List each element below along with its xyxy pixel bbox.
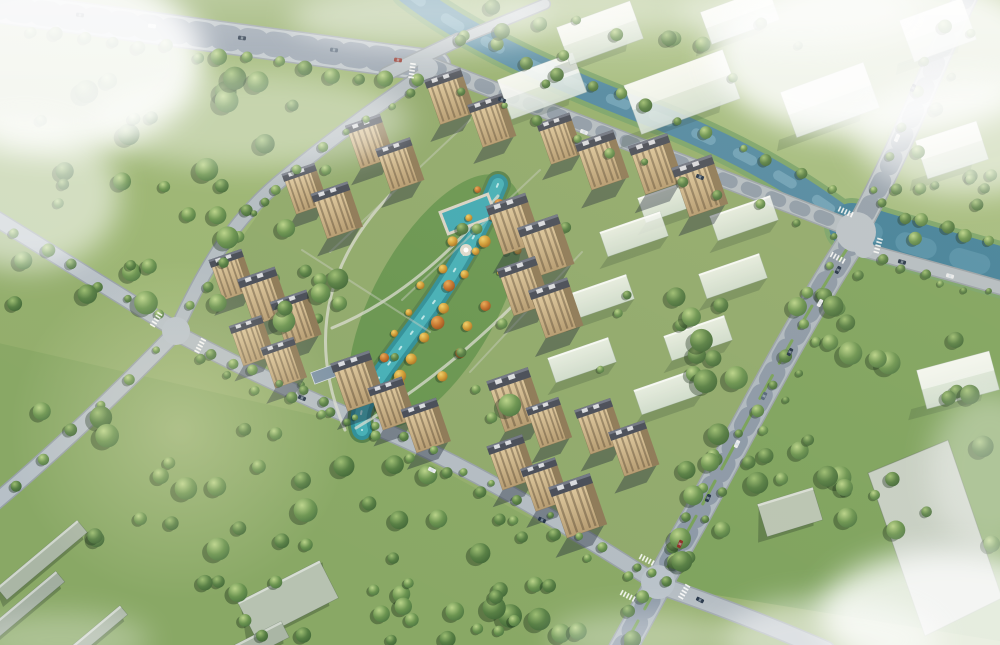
atmosphere-layer [0, 0, 1000, 645]
aerial-render-canvas [0, 0, 1000, 645]
aerial-render-scene [0, 0, 1000, 645]
top-atmosphere-veil [0, 0, 1000, 90]
sun-glow [10, 260, 350, 600]
